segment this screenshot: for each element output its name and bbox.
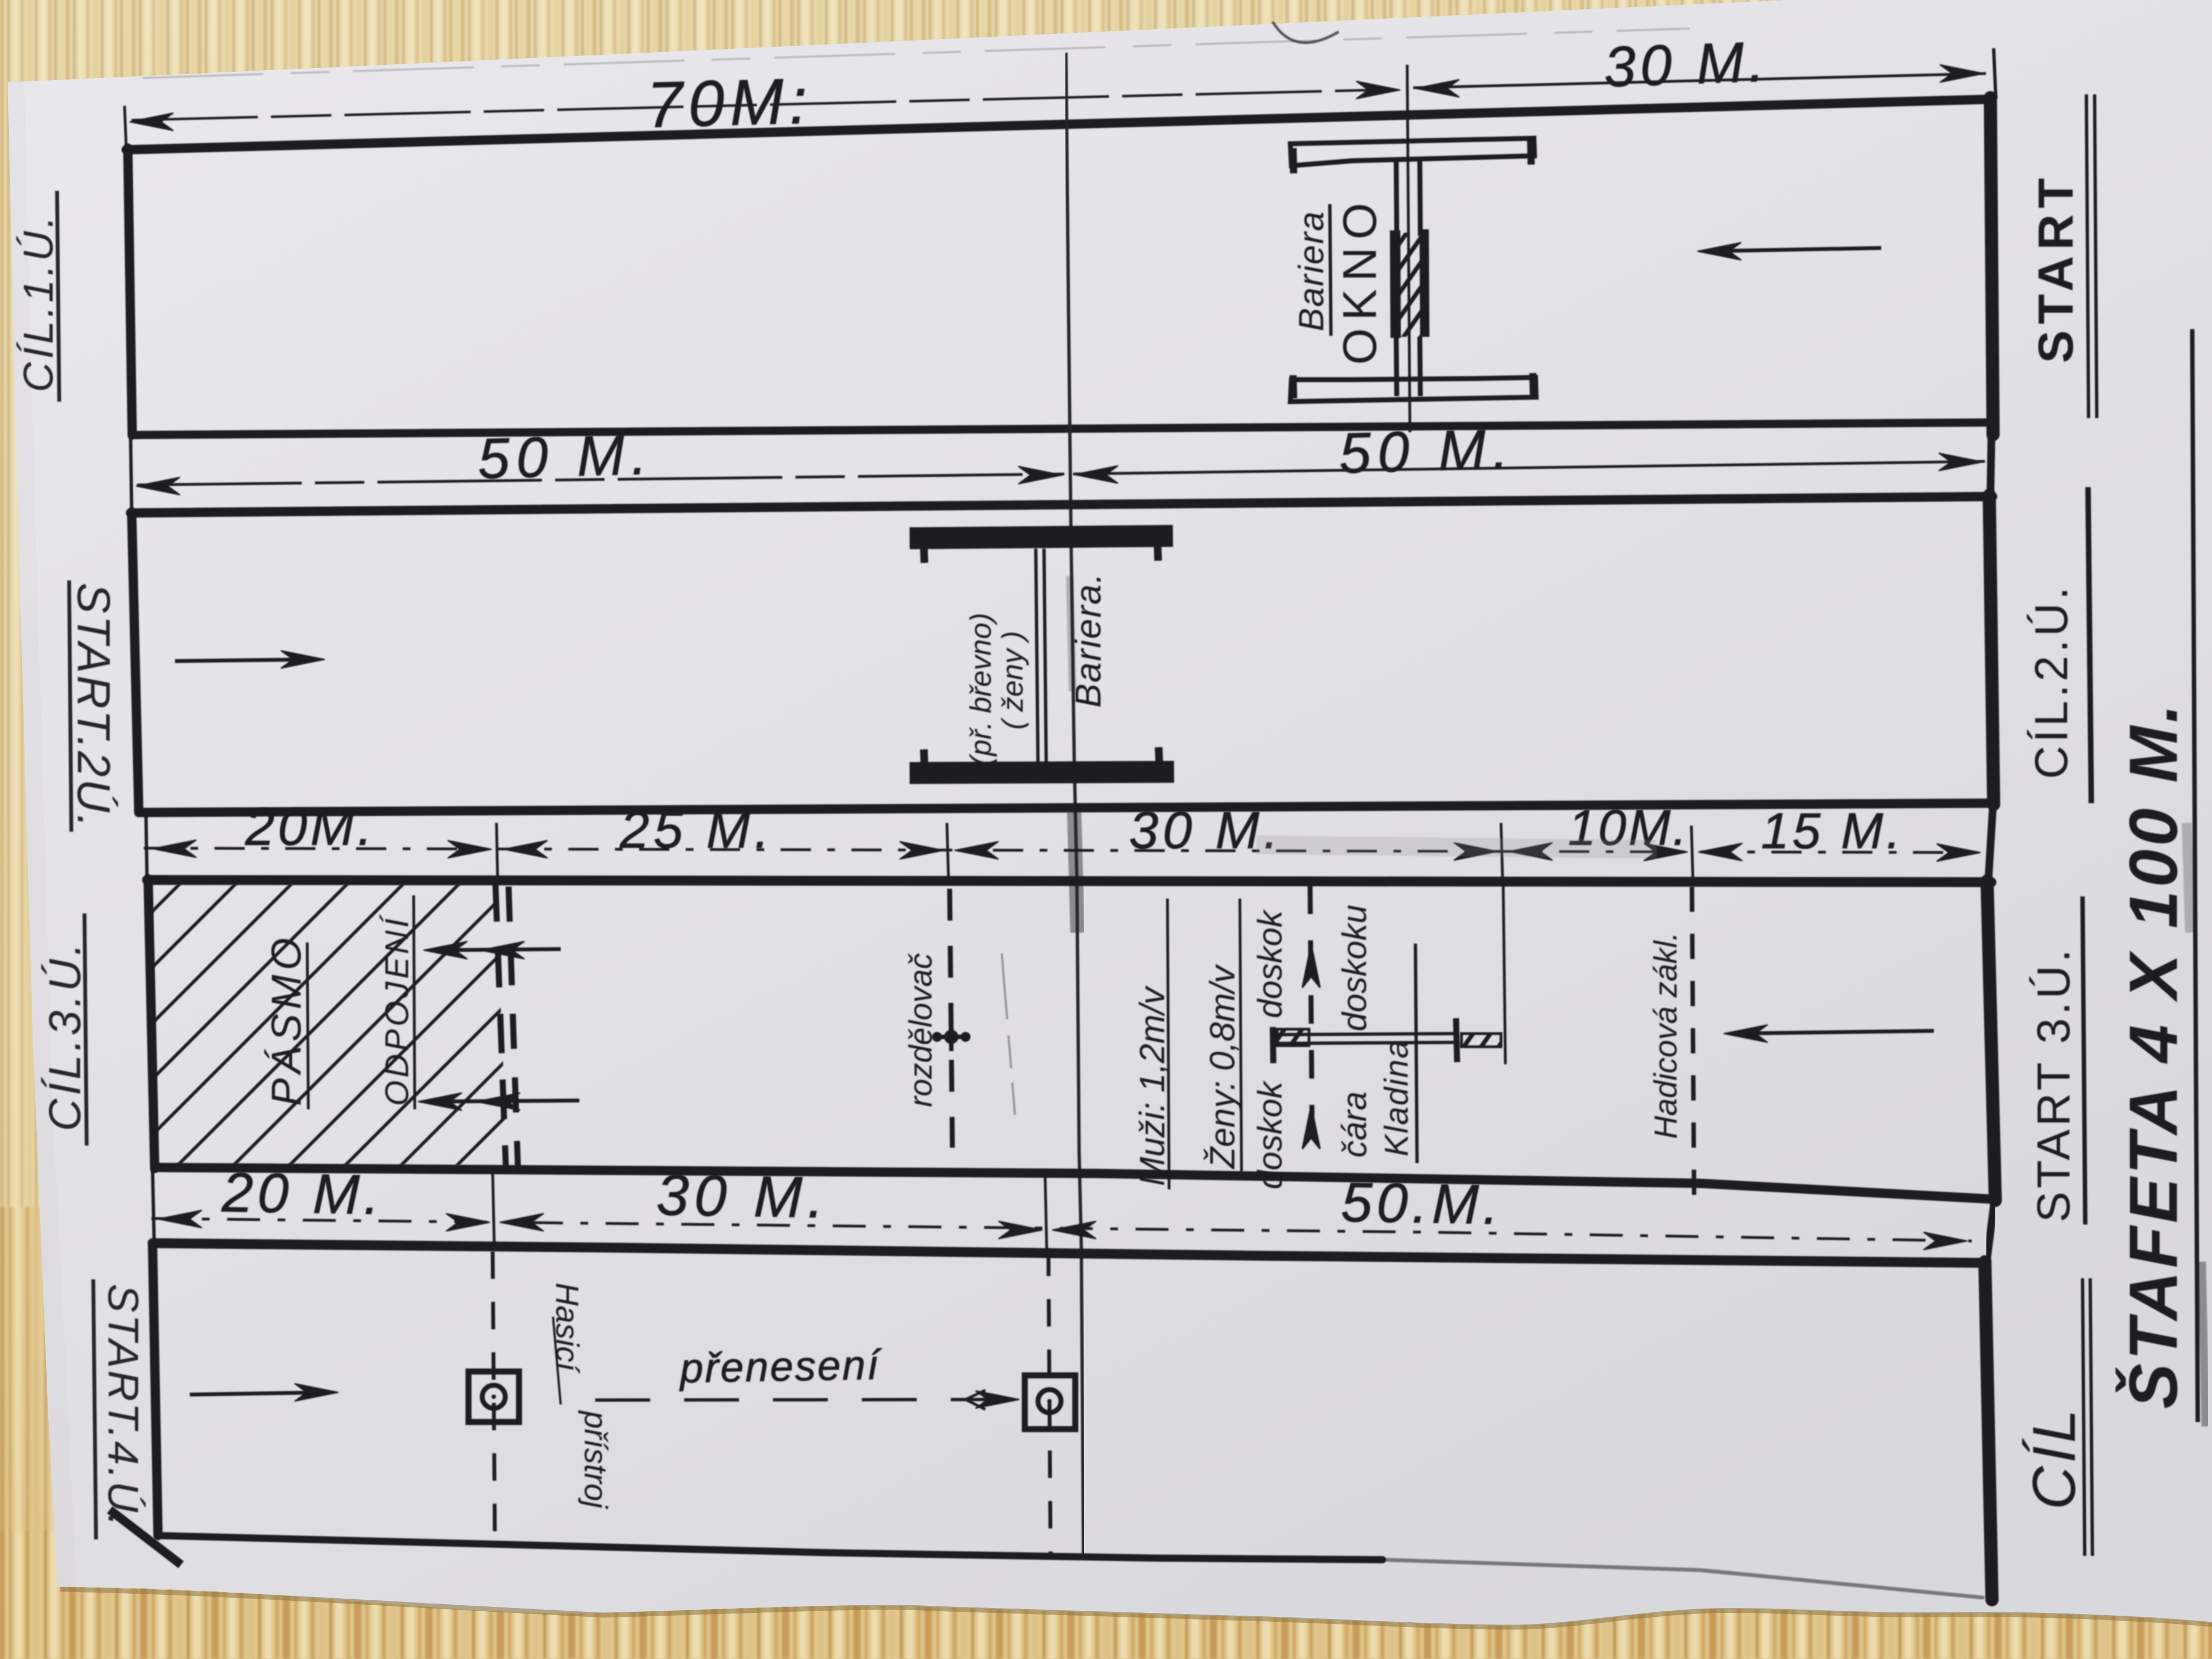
svg-text:čára: čára (1336, 1091, 1374, 1158)
svg-text:doskoku: doskoku (1336, 905, 1374, 1031)
svg-text:Kladina: Kladina (1378, 1039, 1415, 1156)
svg-text:ODPOJENÍ: ODPOJENÍ (379, 914, 415, 1106)
svg-text:Ženy: 0,8m/v: Ženy: 0,8m/v (1203, 963, 1242, 1170)
svg-text:20M.: 20M. (245, 798, 375, 856)
svg-text:Bariera.: Bariera. (1068, 572, 1108, 708)
svg-text:30 M.: 30 M. (656, 1163, 830, 1230)
svg-text:50 M.: 50 M. (1339, 417, 1516, 486)
svg-text:15 M.: 15 M. (1761, 803, 1904, 859)
svg-text:START.2Ú.: START.2Ú. (68, 583, 120, 830)
svg-text:CÍL.2.Ú.: CÍL.2.Ú. (2025, 584, 2077, 779)
svg-text:70M:: 70M: (646, 65, 814, 142)
svg-text:50.M.: 50.M. (1341, 1171, 1504, 1236)
svg-text:CÍL.1.Ú.: CÍL.1.Ú. (15, 213, 62, 392)
svg-text:rozdělovač: rozdělovač (903, 953, 939, 1107)
svg-text:20 M.: 20 M. (221, 1161, 385, 1226)
svg-text:Hadicová zákl.: Hadicová zákl. (1648, 932, 1684, 1139)
svg-text:50 M.: 50 M. (477, 423, 654, 491)
svg-text:ŠTAFETA 4 X 100 M.: ŠTAFETA 4 X 100 M. (2115, 701, 2192, 1409)
svg-text:(př. břevno): (př. břevno) (964, 613, 997, 766)
svg-text:doskok: doskok (1251, 909, 1289, 1018)
svg-text:START: START (2029, 172, 2084, 363)
svg-text:CÍL: CÍL (2021, 1406, 2088, 1510)
svg-text:30 M.: 30 M. (1603, 30, 1770, 99)
svg-text:CÍL.3.Ú.: CÍL.3.Ú. (40, 940, 90, 1131)
svg-text:OKNO: OKNO (1334, 195, 1386, 365)
svg-text:Muži: 1,2m/v: Muži: 1,2m/v (1132, 985, 1172, 1186)
svg-text:Bariera: Bariera (1291, 211, 1331, 331)
svg-text:přístroj: přístroj (578, 1410, 613, 1509)
svg-text:přenesení: přenesení (679, 1342, 883, 1392)
svg-text:( ženy ): ( ženy ) (996, 631, 1029, 730)
svg-text:25 M.: 25 M. (619, 800, 774, 859)
svg-text:START 3.Ú.: START 3.Ú. (2028, 946, 2079, 1222)
svg-text:doskok: doskok (1251, 1080, 1289, 1189)
svg-text:START.4.Ú.: START.4.Ú. (99, 1284, 148, 1528)
svg-text:PÁSMO: PÁSMO (263, 934, 310, 1107)
